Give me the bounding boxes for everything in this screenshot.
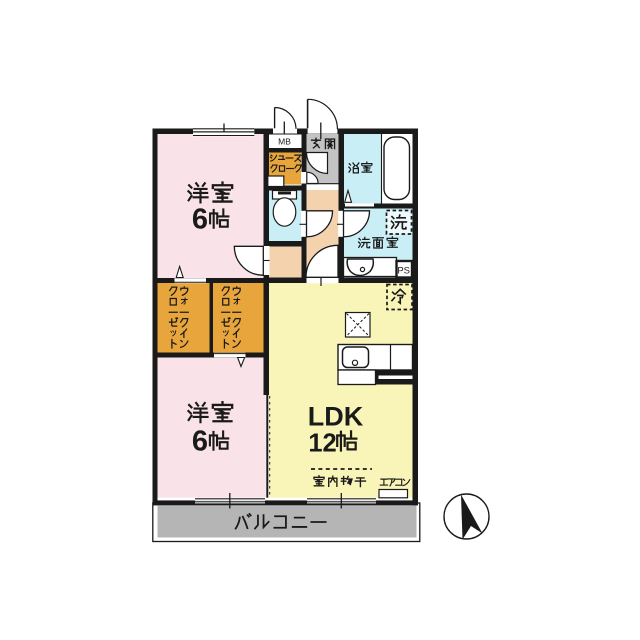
svg-text:6: 6 bbox=[192, 204, 208, 236]
svg-text:MB: MB bbox=[278, 137, 291, 147]
svg-text:6: 6 bbox=[192, 426, 208, 458]
svg-text:12: 12 bbox=[308, 430, 336, 458]
svg-text:LDK: LDK bbox=[308, 401, 364, 431]
svg-text:PS: PS bbox=[397, 266, 410, 277]
